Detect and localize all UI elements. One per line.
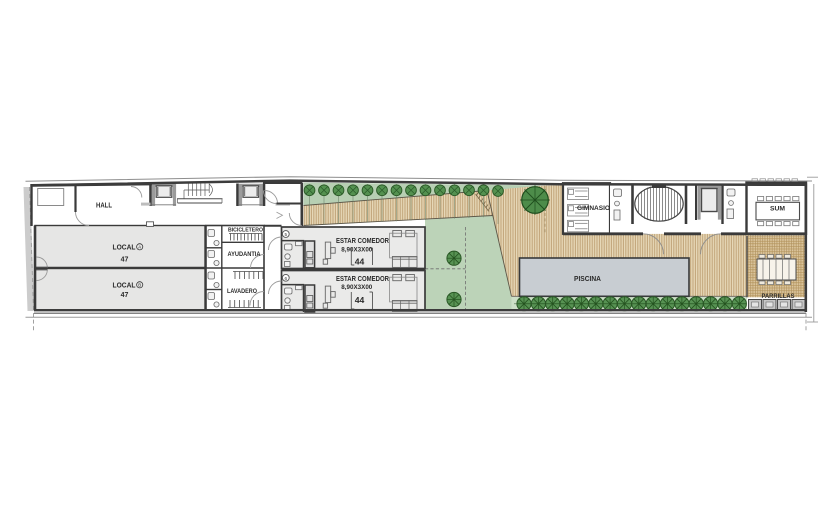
svg-text:6: 6 [285,276,288,281]
svg-text:B: B [138,283,141,288]
svg-text:GIMNASIO: GIMNASIO [577,205,610,212]
svg-text:LOCAL: LOCAL [113,244,137,251]
svg-text:8,90X3X00: 8,90X3X00 [341,284,373,291]
svg-text:5: 5 [285,232,288,237]
svg-text:47: 47 [121,257,129,264]
svg-text:BICICLETERO: BICICLETERO [228,228,263,234]
svg-text:PARRILLAS: PARRILLAS [762,293,795,300]
svg-text:AYUDANTIA: AYUDANTIA [228,251,261,258]
svg-text:ESTAR COMEDOR: ESTAR COMEDOR [336,236,390,245]
svg-text:44: 44 [355,257,365,267]
svg-text:44: 44 [355,295,365,305]
svg-text:ESTAR COMEDOR: ESTAR COMEDOR [336,274,390,283]
svg-text:47: 47 [121,292,129,299]
svg-text:A: A [138,245,141,250]
svg-text:LAVADERO: LAVADERO [227,288,257,295]
svg-text:LOCAL: LOCAL [113,282,137,289]
svg-text:HALL: HALL [96,201,112,210]
svg-text:8,90X3X00: 8,90X3X00 [341,247,373,254]
svg-text:SUM: SUM [770,205,785,212]
svg-text:PISCINA: PISCINA [574,274,602,283]
